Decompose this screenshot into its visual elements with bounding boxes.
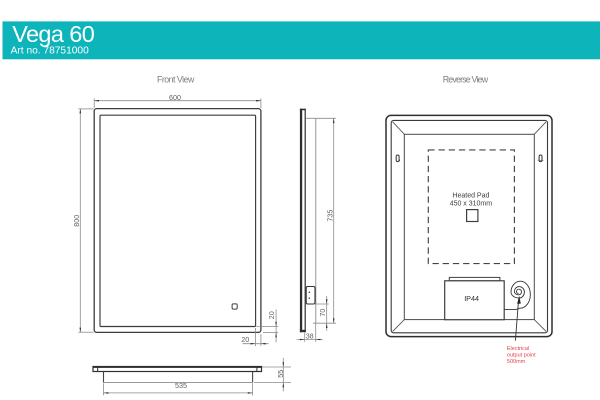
svg-text:55: 55 <box>276 370 285 378</box>
svg-text:Electrical: Electrical <box>507 346 529 352</box>
svg-text:Reverse View: Reverse View <box>443 75 489 85</box>
svg-text:Art no. 78751000: Art no. 78751000 <box>11 46 90 57</box>
svg-text:IP44: IP44 <box>464 294 479 303</box>
svg-text:20: 20 <box>241 335 249 344</box>
svg-text:Front View: Front View <box>157 75 195 85</box>
svg-text:735: 735 <box>325 210 334 222</box>
svg-text:600: 600 <box>169 93 181 102</box>
svg-text:output point: output point <box>507 353 536 359</box>
svg-text:38: 38 <box>306 331 314 340</box>
svg-text:800: 800 <box>72 215 81 227</box>
svg-text:70: 70 <box>318 309 327 317</box>
svg-text:20: 20 <box>267 311 276 319</box>
svg-text:500mm: 500mm <box>507 359 526 365</box>
svg-text:Vega 60: Vega 60 <box>12 21 95 47</box>
svg-text:450 x 310mm: 450 x 310mm <box>450 201 493 208</box>
svg-text:Heated Pad: Heated Pad <box>452 193 489 200</box>
